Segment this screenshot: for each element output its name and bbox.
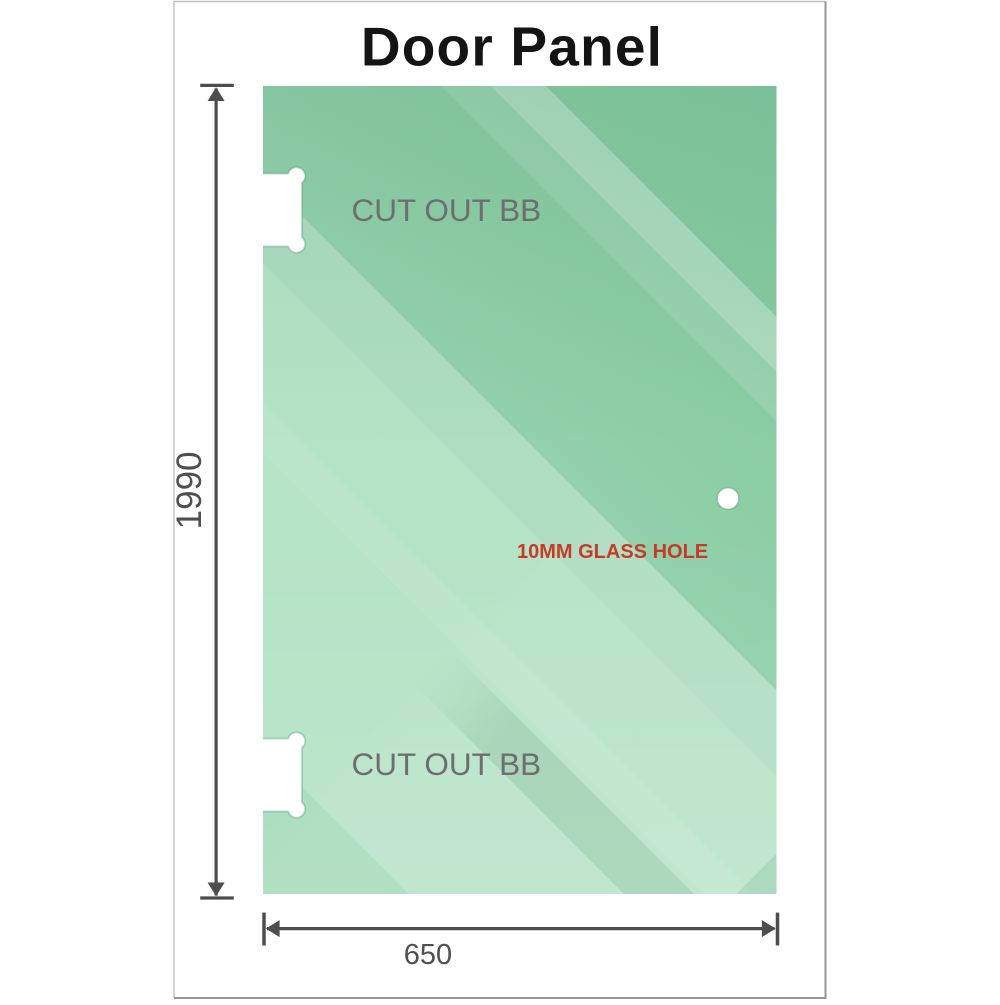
svg-text:1990: 1990 <box>170 451 209 529</box>
svg-text:Door Panel: Door Panel <box>361 16 663 78</box>
svg-text:CUT OUT BB: CUT OUT BB <box>352 746 542 782</box>
svg-text:10MM GLASS HOLE: 10MM GLASS HOLE <box>517 541 708 563</box>
svg-text:650: 650 <box>404 939 452 971</box>
svg-text:CUT OUT BB: CUT OUT BB <box>352 192 542 228</box>
